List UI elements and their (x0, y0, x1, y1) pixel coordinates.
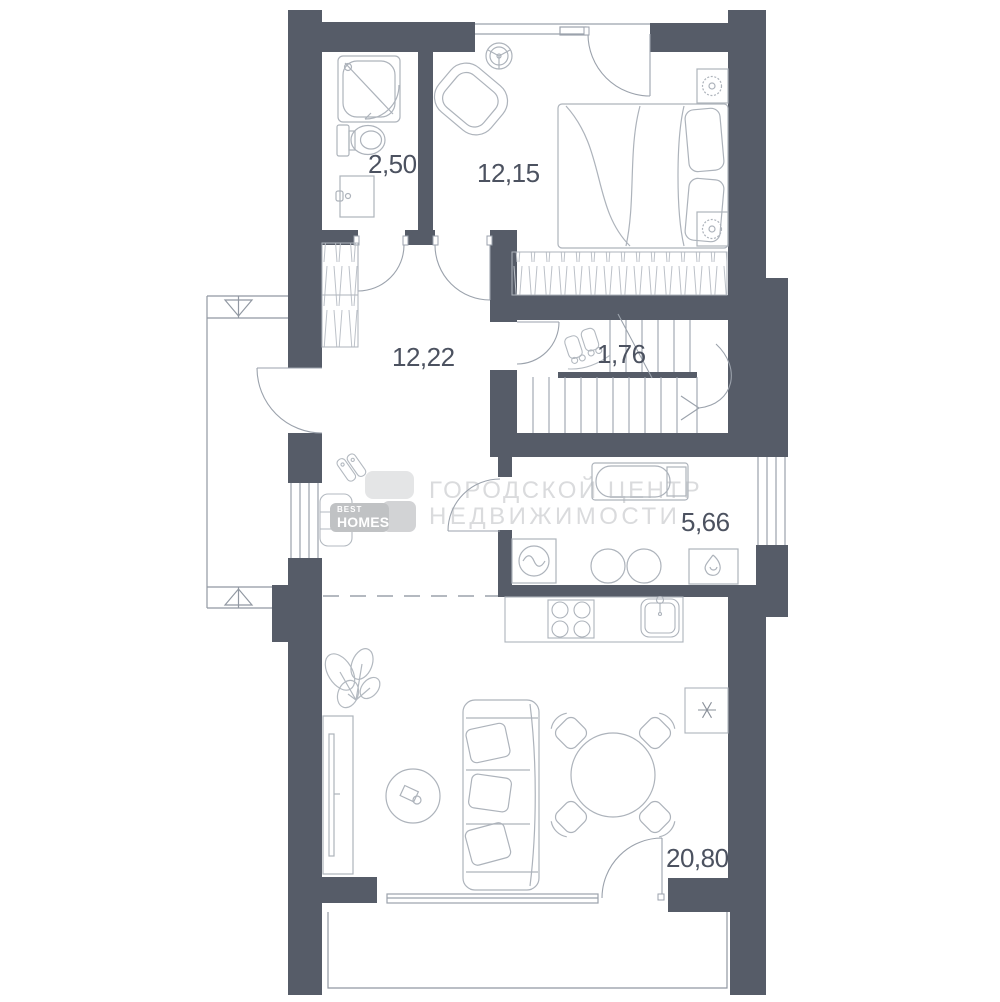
bed (558, 104, 728, 248)
stool-1 (591, 549, 625, 583)
room-label-bedroom: 12,15 (477, 158, 540, 189)
hall-window (291, 483, 318, 558)
stair-direction-arrow (681, 344, 731, 420)
room-label-utility: 5,66 (681, 507, 730, 538)
utility-window (758, 457, 785, 545)
logo-text-homes: HOMES (337, 515, 389, 529)
hall-wardrobe (322, 243, 358, 347)
windows (291, 24, 785, 903)
tv-console (323, 716, 353, 874)
room-label-bathroom: 2,50 (368, 149, 417, 180)
bedroom-balcony-door (588, 34, 650, 96)
bedroom-door (435, 245, 490, 300)
bathtub (592, 463, 688, 500)
terrace-door (602, 838, 662, 898)
ceiling-fan (486, 43, 512, 69)
kitchen-sink (641, 597, 679, 638)
floor-plan-drawing (0, 0, 1000, 1002)
coffee-table (386, 769, 440, 823)
stove (548, 600, 594, 638)
bathroom-fixtures (336, 56, 400, 217)
agency-logo: BEST HOMES (330, 503, 389, 532)
bathroom-door (358, 245, 404, 291)
entry-door (257, 368, 322, 433)
living-window (387, 894, 598, 903)
nightstand-top (697, 69, 728, 103)
gas-boiler (689, 549, 738, 584)
bedroom-closet (512, 252, 727, 295)
stool-2 (627, 549, 661, 583)
logo-text-best: BEST (337, 506, 389, 514)
room-label-stairs: 1,76 (597, 339, 646, 370)
living-furniture (319, 645, 678, 890)
bathroom-sink (336, 176, 374, 217)
room-label-living: 20,80 (666, 843, 729, 874)
bedroom-furniture (426, 43, 728, 248)
entry-porch (207, 296, 288, 608)
plant (319, 645, 384, 710)
sofa (463, 700, 539, 890)
sneakers-icon (335, 451, 367, 485)
room-label-hall: 12,22 (392, 342, 455, 373)
logo-tile-1 (365, 471, 414, 499)
terrace (328, 912, 727, 988)
washing-machine (512, 539, 556, 583)
shower (338, 56, 400, 122)
vent-shaft (685, 688, 728, 733)
bedroom-balcony-opening (475, 24, 650, 35)
utility-door (448, 479, 500, 531)
stairs-door (517, 322, 559, 364)
dining-table (547, 709, 678, 840)
floor-plan: ГОРОДСКОЙ ЦЕНТР НЕДВИЖИМОСТИ (0, 0, 1000, 1002)
